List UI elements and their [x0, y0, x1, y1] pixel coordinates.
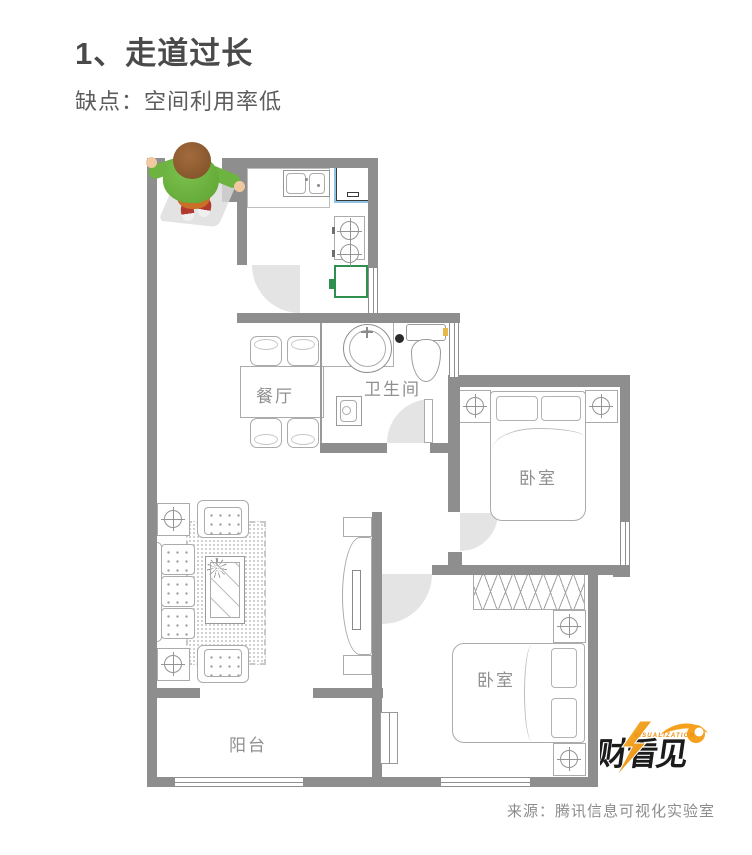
toilet-button: [443, 328, 448, 336]
kitchen-door-swing: [252, 265, 300, 313]
sofa-cushion: [161, 576, 195, 607]
dining-stool: [287, 336, 319, 366]
tv-cabinet-top: [343, 517, 372, 537]
armchair-cushion: [204, 507, 242, 535]
balcony-bedroom-window: [380, 712, 398, 764]
wardrobe: [473, 574, 585, 610]
lamp-icon: [560, 617, 578, 635]
bathroom-door-leaf: [424, 399, 433, 443]
room-label-bathroom: 卫生间: [364, 375, 421, 400]
lamp-icon: [592, 397, 610, 415]
kitchen-sink-basin-left: [286, 173, 306, 194]
pillow: [551, 698, 577, 738]
wall-bathroom-bottom-b: [430, 443, 460, 453]
room-label-balcony: 阳台: [229, 731, 267, 756]
wall-bedroom-right: [620, 387, 630, 522]
wall-bedroom2-right: [588, 575, 598, 777]
tv-cabinet-bottom: [343, 655, 372, 675]
blanket-fold: [524, 645, 546, 741]
logo-text: 财看见: [600, 736, 690, 772]
pillow: [551, 648, 577, 688]
lamp-icon: [164, 655, 182, 673]
caikanjian-logo: 财看见 VISUALIZATION: [600, 720, 720, 780]
washing-machine-drum: [342, 406, 351, 415]
bedroom-bottom-door-swing: [382, 574, 432, 624]
kitchen-cabinet-knob: [329, 279, 336, 289]
bedroom-bottom-window: [441, 777, 530, 787]
wall-bedrooms-divider: [432, 565, 630, 575]
armchair-cushion: [204, 649, 242, 677]
stove-knob: [332, 227, 335, 234]
kitchen-faucet-icon: [305, 178, 308, 181]
pillow: [496, 396, 538, 421]
kitchen-cabinet-green: [334, 265, 368, 298]
wall-bathroom-bottom-a: [320, 443, 387, 453]
plant-icon: [207, 558, 227, 578]
lamp-icon: [560, 750, 578, 768]
balcony-window-left: [175, 777, 303, 787]
lamp-icon: [466, 397, 484, 415]
kitchen-window: [368, 268, 378, 313]
room-label-bedroom-top: 卧室: [519, 464, 557, 489]
burner-icon: [340, 221, 359, 240]
dining-stool: [250, 336, 282, 366]
lamp-icon: [164, 510, 182, 528]
tv-screen: [352, 570, 361, 630]
infographic-canvas: 1、走道过长 缺点：空间利用率低: [0, 0, 752, 855]
logo-tagline: VISUALIZATION: [634, 733, 695, 739]
wall-divider-stub: [448, 552, 462, 565]
boy-hand: [146, 157, 157, 168]
bedroom-top-door-swing: [460, 513, 498, 551]
wall-kitchen-right: [368, 158, 378, 268]
wall-bathroom-partition: [320, 323, 322, 443]
wall-bedroom-top: [448, 375, 630, 387]
bathroom-window: [449, 323, 459, 377]
fridge-handle: [347, 192, 359, 197]
kitchen-faucet-icon: [317, 184, 320, 187]
boy-head: [173, 142, 211, 179]
bathroom-drain-dot: [395, 334, 404, 343]
dining-stool: [250, 418, 282, 448]
boy-hand: [234, 181, 245, 192]
stove-knob: [332, 250, 335, 257]
boy-figure: [145, 140, 241, 226]
basin-faucet-icon: [361, 331, 373, 333]
page-subtitle: 缺点：空间利用率低: [75, 84, 282, 116]
room-label-bedroom-bottom: 卧室: [477, 666, 515, 691]
logo-eye-highlight: [695, 728, 704, 737]
sofa-cushion: [161, 544, 195, 575]
sofa-cushion: [161, 608, 195, 639]
bedroom-top-window: [620, 522, 630, 565]
dining-stool: [287, 418, 319, 448]
wall-kitchen-bottom: [237, 313, 460, 323]
room-label-dining: 餐厅: [256, 382, 294, 407]
source-credit: 来源：腾讯信息可视化实验室: [375, 800, 715, 821]
pillow: [541, 396, 581, 421]
page-title: 1、走道过长: [75, 28, 253, 73]
wall-balcony-top-a: [147, 688, 200, 698]
burner-icon: [340, 244, 359, 263]
